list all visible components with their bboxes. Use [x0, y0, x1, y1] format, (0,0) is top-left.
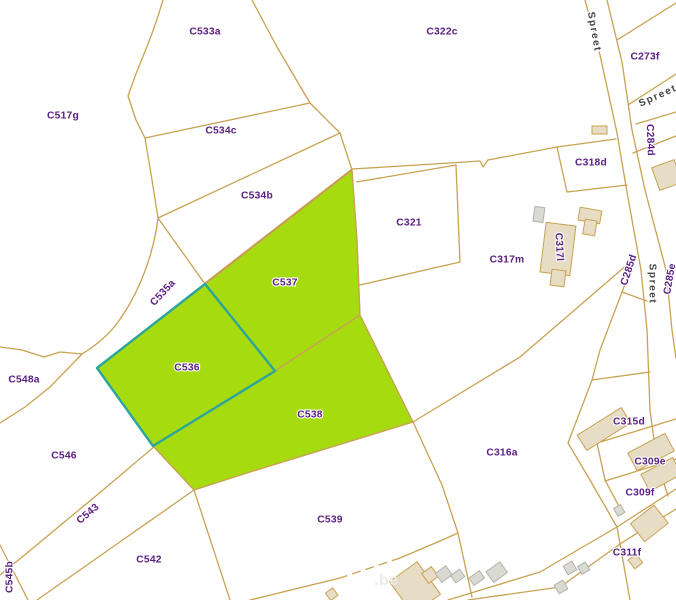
- parcel-label-C317l: C317l: [553, 233, 565, 262]
- parcel-label-C534b: C534b: [241, 191, 273, 202]
- map-viewport[interactable]: SpreetSpreetSpreet C533aC322cC273fC517gC…: [0, 0, 676, 600]
- parcel-label-C535a: C535a: [148, 278, 177, 308]
- parcel-label-C545b: C545b: [5, 561, 16, 593]
- parcel-label-C284d: C284d: [644, 124, 656, 156]
- parcel-label-C533a: C533a: [189, 27, 220, 38]
- parcel-label-C548a: C548a: [8, 375, 39, 386]
- parcel-label-C315d: C315d: [613, 417, 645, 428]
- parcel-label-C321: C321: [396, 218, 421, 229]
- parcel-label-C536: C536: [174, 363, 199, 374]
- parcel-label-C309e: C309e: [634, 457, 665, 468]
- parcel-label-C538: C538: [297, 410, 322, 421]
- parcel-label-C318d: C318d: [575, 158, 607, 169]
- watermark: .be: [374, 572, 399, 590]
- street-label-Spreet: Spreet: [585, 11, 603, 53]
- parcel-label-C322c: C322c: [426, 27, 457, 38]
- parcel-label-C273f: C273f: [630, 52, 659, 63]
- map-canvas[interactable]: SpreetSpreetSpreet C533aC322cC273fC517gC…: [0, 0, 676, 600]
- parcel-label-C311f: C311f: [613, 548, 642, 559]
- parcel-label-C534c: C534c: [205, 126, 236, 137]
- parcel-label-C285e: C285e: [662, 263, 676, 296]
- parcel-label-C309f: C309f: [625, 488, 654, 499]
- parcel-label-C539: C539: [317, 515, 342, 526]
- parcel-label-C517g: C517g: [47, 111, 79, 122]
- parcel-label-C542: C542: [136, 555, 161, 566]
- parcel-label-C285d: C285d: [619, 253, 639, 287]
- parcel-label-C537: C537: [272, 278, 297, 289]
- parcel-label-C543: C543: [75, 502, 102, 527]
- parcel-label-C546: C546: [51, 451, 76, 462]
- street-label-Spreet: Spreet: [646, 264, 657, 305]
- parcel-label-C317m: C317m: [490, 255, 525, 266]
- parcel-label-C316a: C316a: [486, 448, 517, 459]
